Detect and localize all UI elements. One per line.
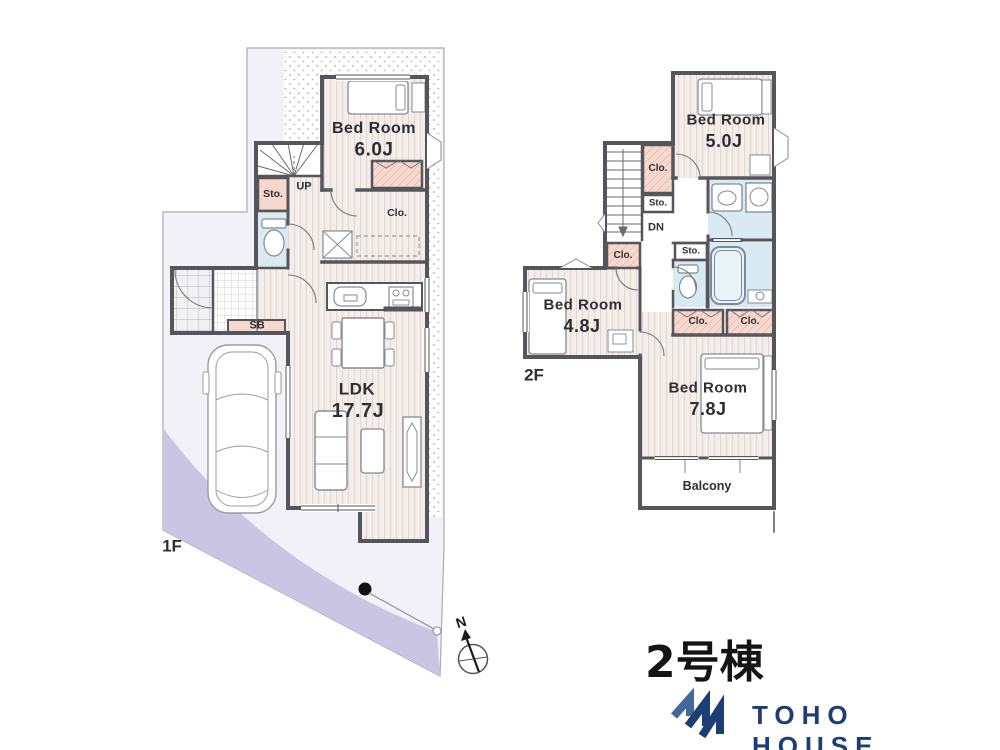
washbasin-icon: [712, 184, 742, 211]
label-storage-1f: Sto.: [263, 189, 283, 200]
bed-1f: [348, 81, 425, 114]
entrance-porch: [172, 268, 213, 333]
label-stairs-down: DN: [648, 223, 664, 234]
label-closet-stairs-2f: Clo.: [649, 164, 668, 174]
label-shoe-box: SB: [249, 321, 264, 332]
label-stairs-up: UP: [296, 182, 311, 193]
washing-machine-icon: [746, 183, 772, 212]
label-balcony: Balcony: [683, 480, 732, 493]
unit-title: 2号棟: [645, 626, 764, 690]
brand-name: TOHO HOUSE: [752, 700, 988, 750]
toho-house-logo-icon: [668, 684, 748, 744]
room-size-bedroom-1f: 6.0J: [355, 141, 394, 160]
car-icon: [203, 345, 281, 513]
room-size-bedroom48: 4.8J: [563, 317, 600, 335]
sofa: [315, 411, 347, 490]
room-label-ldk: LDK: [339, 381, 375, 398]
brand-logo: TOHO HOUSE: [668, 684, 988, 744]
kitchen-counter: [327, 283, 422, 310]
label-closet-1f: Clo.: [387, 208, 407, 219]
label-closet-48: Clo.: [614, 251, 633, 261]
label-closet-right-2f: Clo.: [741, 317, 760, 327]
room-size-ldk: 17.7J: [332, 401, 385, 421]
floor-plan-page: Bed Room 6.0J Sto. UP Clo. SB LDK 17.7J …: [0, 0, 1000, 750]
compass-icon: [459, 629, 488, 674]
label-storage-mid-2f: Sto.: [682, 246, 700, 256]
label-storage-stairs-2f: Sto.: [649, 198, 667, 208]
room-label-bedroom48: Bed Room: [544, 298, 623, 313]
room-label-bedroom78: Bed Room: [669, 381, 748, 396]
room-size-bedroom5: 5.0J: [705, 132, 742, 150]
room-label-bedroom-1f: Bed Room: [332, 121, 416, 137]
room-label-bedroom5: Bed Room: [687, 113, 766, 128]
tv-board: [403, 417, 421, 487]
living-table: [361, 429, 384, 473]
floor-plan-graphic: [0, 0, 1000, 750]
toilet-icon-1f: [262, 219, 286, 256]
closet-1f: [372, 161, 422, 188]
label-closet-left-2f: Clo.: [689, 317, 708, 327]
floor-label-2f: 2F: [524, 367, 544, 384]
room-size-bedroom78: 7.8J: [689, 400, 726, 418]
floor-label-1f: 1F: [162, 538, 182, 555]
